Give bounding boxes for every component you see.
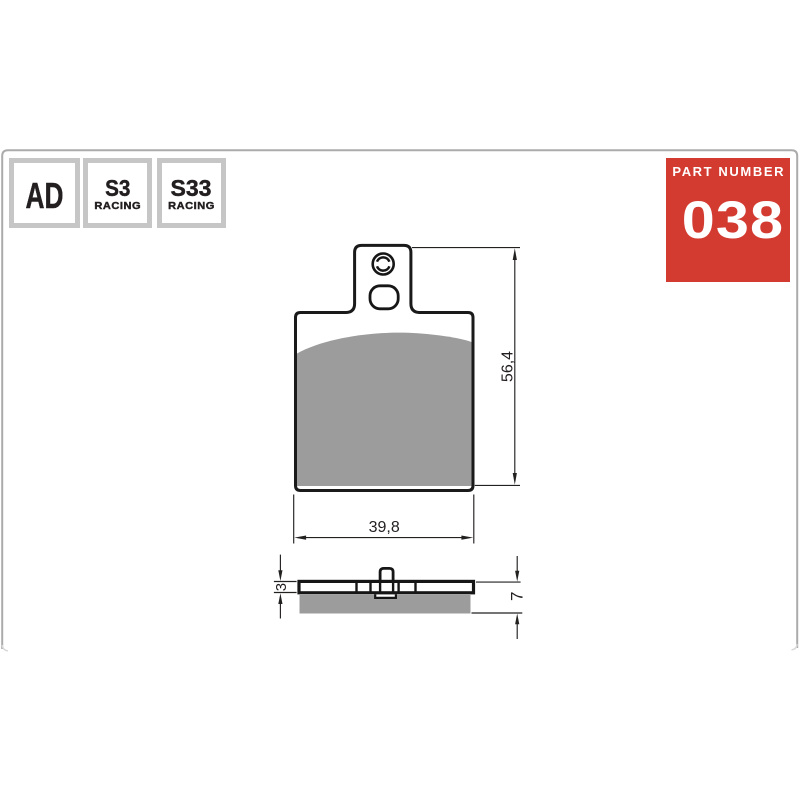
svg-text:39,8: 39,8: [369, 519, 400, 536]
svg-text:56,4: 56,4: [499, 351, 516, 382]
svg-text:7: 7: [507, 592, 526, 601]
svg-text:3: 3: [273, 583, 290, 591]
